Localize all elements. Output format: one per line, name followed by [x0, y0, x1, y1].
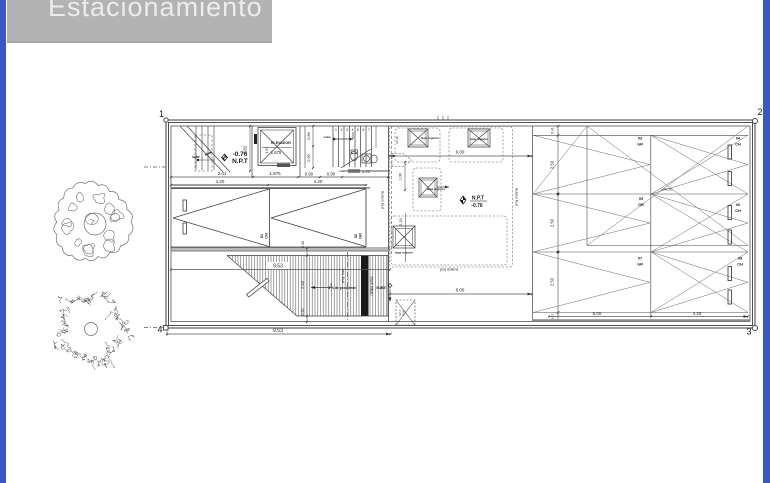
svg-text:1.675: 1.675 — [271, 150, 282, 155]
svg-text:4: 4 — [352, 128, 354, 132]
svg-text:1.875: 1.875 — [269, 171, 281, 176]
svg-text:3.41: 3.41 — [218, 171, 227, 176]
svg-text:0.30: 0.30 — [301, 309, 305, 316]
svg-text:4: 4 — [157, 325, 162, 335]
svg-text:1.67: 1.67 — [265, 147, 269, 154]
svg-text:tapa registro: tapa registro — [421, 136, 439, 140]
svg-text:1.82: 1.82 — [243, 145, 248, 154]
svg-text:tapa registro: tapa registro — [427, 187, 445, 191]
svg-text:GR: GR — [637, 262, 643, 266]
svg-text:06: 06 — [736, 203, 740, 207]
svg-text:proy cisterna: proy cisterna — [515, 188, 519, 206]
svg-text:proy cisterna: proy cisterna — [381, 191, 385, 209]
svg-text:02: 02 — [354, 234, 358, 238]
svg-text:7: 7 — [368, 128, 370, 132]
svg-text:0.90: 0.90 — [327, 172, 336, 177]
svg-text:4.20: 4.20 — [216, 179, 225, 184]
svg-text:proy. losa: proy. losa — [341, 269, 345, 284]
svg-text:4.20: 4.20 — [314, 179, 323, 184]
svg-text:01: 01 — [260, 234, 264, 238]
svg-text:9.53: 9.53 — [273, 328, 283, 334]
svg-text:0.30: 0.30 — [301, 241, 305, 248]
svg-text:ver det: ver det — [395, 136, 399, 144]
svg-text:proy cisterna: proy cisterna — [440, 268, 458, 272]
svg-text:05: 05 — [639, 197, 643, 201]
svg-text:08: 08 — [738, 257, 742, 261]
svg-text:3: 3 — [746, 327, 751, 337]
svg-text:9.53: 9.53 — [273, 264, 283, 270]
svg-text:03: 03 — [638, 137, 642, 141]
svg-text:GR: GR — [638, 203, 644, 207]
svg-text:tapa registro: tapa registro — [395, 251, 413, 255]
svg-text:2.20: 2.20 — [399, 218, 403, 225]
svg-text:CH: CH — [735, 209, 741, 213]
svg-text:CH: CH — [735, 142, 741, 146]
svg-text:2.50: 2.50 — [550, 277, 555, 286]
svg-text:sube: sube — [192, 155, 200, 159]
svg-text:GR: GR — [359, 233, 363, 239]
svg-text:6.00: 6.00 — [456, 288, 465, 293]
svg-text:5.00: 5.00 — [593, 311, 602, 316]
svg-text:tapa registro: tapa registro — [470, 137, 488, 141]
svg-text:N.P.T: N.P.T — [472, 196, 484, 202]
svg-text:0.41: 0.41 — [551, 127, 555, 134]
svg-text:2: 2 — [757, 107, 762, 117]
svg-text:07: 07 — [638, 257, 642, 261]
svg-text:1.06: 1.06 — [399, 173, 403, 180]
svg-text:SUBE: SUBE — [376, 286, 386, 290]
svg-text:2: 2 — [341, 128, 343, 132]
svg-text:-2.05: -2.05 — [402, 309, 406, 315]
svg-text:2.50: 2.50 — [300, 280, 305, 289]
svg-text:4.20: 4.20 — [693, 311, 702, 316]
svg-text:N.P.T: N.P.T — [232, 158, 248, 165]
svg-text:0.90: 0.90 — [305, 172, 314, 177]
svg-text:1: 1 — [335, 128, 337, 132]
svg-text:6: 6 — [363, 128, 365, 132]
svg-text:sube: sube — [323, 135, 330, 139]
svg-text:N.P.T: N.P.T — [398, 309, 402, 316]
svg-text:CH: CH — [737, 262, 743, 266]
svg-text:6.00: 6.00 — [456, 150, 465, 155]
svg-text:2.50: 2.50 — [550, 218, 555, 227]
svg-text:GR: GR — [637, 142, 643, 146]
svg-text:5: 5 — [357, 128, 359, 132]
svg-text:-0.76: -0.76 — [471, 203, 483, 209]
svg-text:3: 3 — [346, 128, 348, 132]
svg-text:CH: CH — [265, 233, 269, 239]
svg-text:1: 1 — [159, 109, 164, 119]
svg-text:0.90: 0.90 — [307, 154, 311, 161]
svg-text:ELEVADOR: ELEVADOR — [271, 141, 291, 145]
svg-text:8 % de pendiente: 8 % de pendiente — [328, 286, 356, 290]
svg-text:rampa autos: rampa autos — [370, 276, 374, 295]
svg-text:0.85: 0.85 — [307, 132, 311, 139]
